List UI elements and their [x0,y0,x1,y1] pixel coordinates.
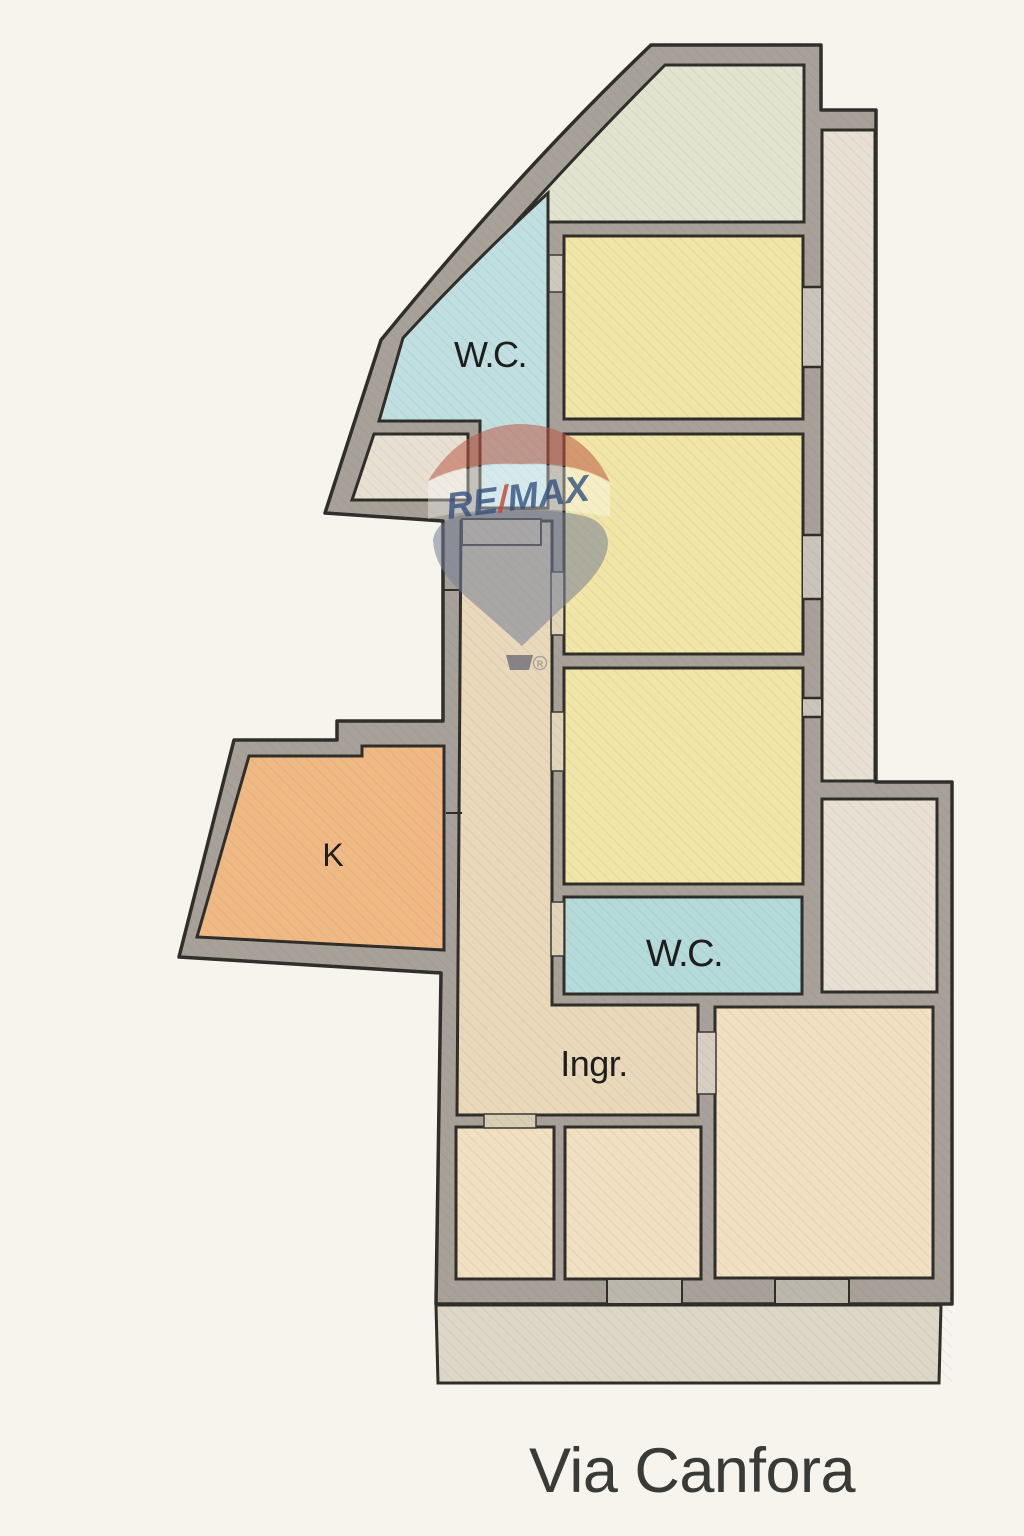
svg-text:W.C.: W.C. [646,933,722,975]
svg-text:R: R [537,659,544,669]
svg-text:W.C.: W.C. [454,334,526,375]
svg-text:K: K [322,837,343,873]
svg-text:Via Canfora: Via Canfora [529,1436,857,1506]
svg-text:Ingr.: Ingr. [560,1043,628,1084]
